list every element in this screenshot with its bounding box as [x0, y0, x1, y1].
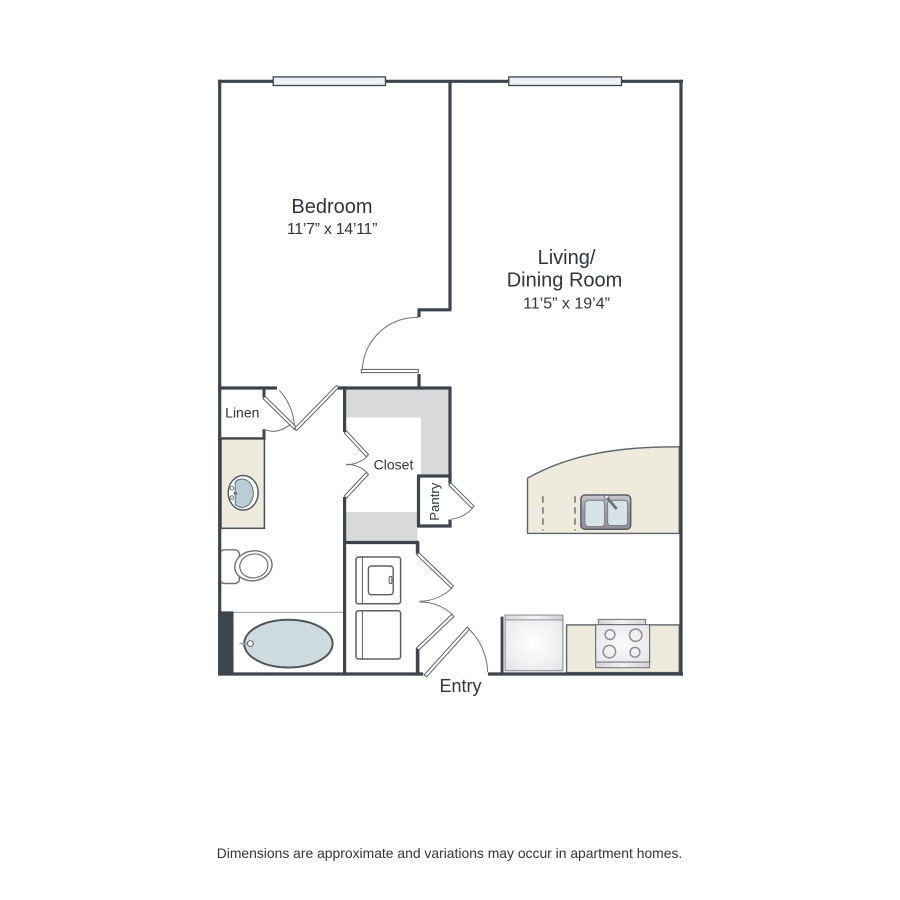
svg-text:11’7” x 14’11”: 11’7” x 14’11”: [287, 221, 377, 238]
svg-text:Dining Room: Dining Room: [507, 270, 623, 292]
svg-text:Dimensions are approximate and: Dimensions are approximate and variation…: [217, 845, 683, 861]
svg-text:Entry: Entry: [439, 676, 481, 696]
svg-text:Closet: Closet: [374, 457, 414, 473]
svg-text:Linen: Linen: [225, 405, 259, 421]
svg-text:Bedroom: Bedroom: [291, 196, 372, 218]
svg-text:Pantry: Pantry: [427, 482, 442, 521]
svg-text:Living/: Living/: [538, 247, 596, 269]
svg-text:11’5” x 19’4”: 11’5” x 19’4”: [523, 296, 610, 313]
